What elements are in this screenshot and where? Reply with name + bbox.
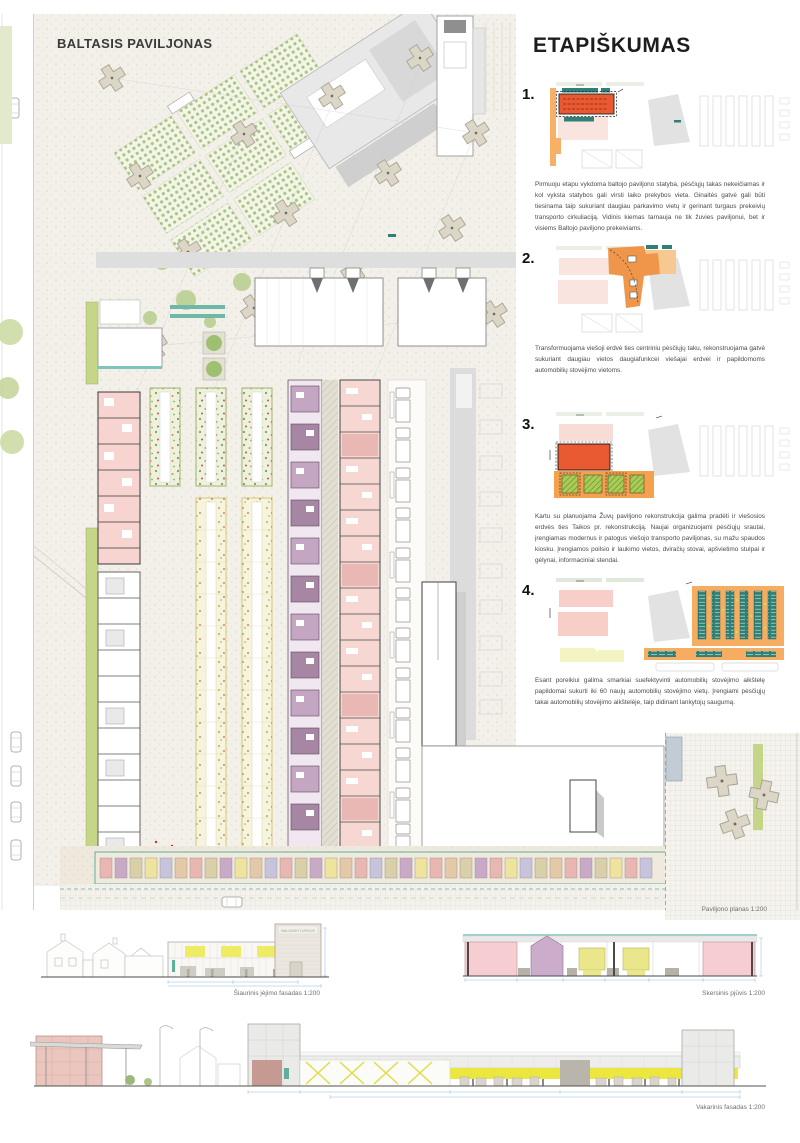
section-drawing [455, 928, 765, 984]
loading-bay [388, 380, 426, 858]
market-hall-facade [248, 1024, 740, 1086]
green-stall-rows [150, 388, 272, 486]
context-houses-outline [47, 934, 163, 977]
south-stall-strip [60, 846, 667, 886]
phase-4-diagram [546, 576, 792, 672]
north-elevation-drawing: NAUJASIS TURGUS [35, 920, 335, 988]
section-caption: Skersinis pjūvis 1:200 [565, 990, 765, 997]
tower-sign-text: NAUJASIS TURGUS [281, 929, 315, 933]
phase-2-diagram [546, 244, 792, 340]
plan-title: BALTASIS PAVILJONAS [57, 36, 212, 51]
phasing-heading: ETAPIŠKUMAS [533, 34, 691, 58]
phase-4-text: Esant poreikiui galima smarkiai suefekty… [535, 676, 765, 709]
phase-3-text: Kartu su planuojama Žuvų paviljono rekon… [535, 512, 765, 566]
facade-dimension-lines [248, 1090, 740, 1099]
west-facade-caption: Vakarinis fasadas 1:200 [565, 1104, 765, 1111]
phase-2-number: 2. [522, 250, 535, 267]
brick-tower-elevation: NAUJASIS TURGUS [275, 924, 321, 977]
purple-stall-row [288, 380, 322, 858]
context-left [30, 1026, 240, 1086]
phase-2-text: Transformuojama viešoji erdvė ties centr… [535, 344, 765, 377]
plan-caption: Paviljono planas 1:200 [560, 906, 767, 913]
phase-1-text: Pirmuoju etapu vykdoma baltojo paviljono… [535, 180, 765, 234]
service-path [322, 380, 338, 858]
west-facade-drawing [30, 1016, 770, 1102]
phase-1-number: 1. [522, 86, 535, 103]
poster-sheet: { "poster": { "plan_title": "BALTASIS PA… [0, 0, 800, 1143]
north-elevation-caption: Šiaurinis įėjimo fasadas 1:200 [120, 990, 320, 997]
west-shop-rows [98, 392, 140, 860]
phase-3-diagram [546, 410, 792, 508]
pink-stall-row [340, 380, 380, 858]
phase-4-number: 4. [522, 582, 535, 599]
phase-3-number: 3. [522, 416, 535, 433]
southeast-plaza [665, 733, 800, 920]
phase-1-diagram [546, 80, 792, 176]
